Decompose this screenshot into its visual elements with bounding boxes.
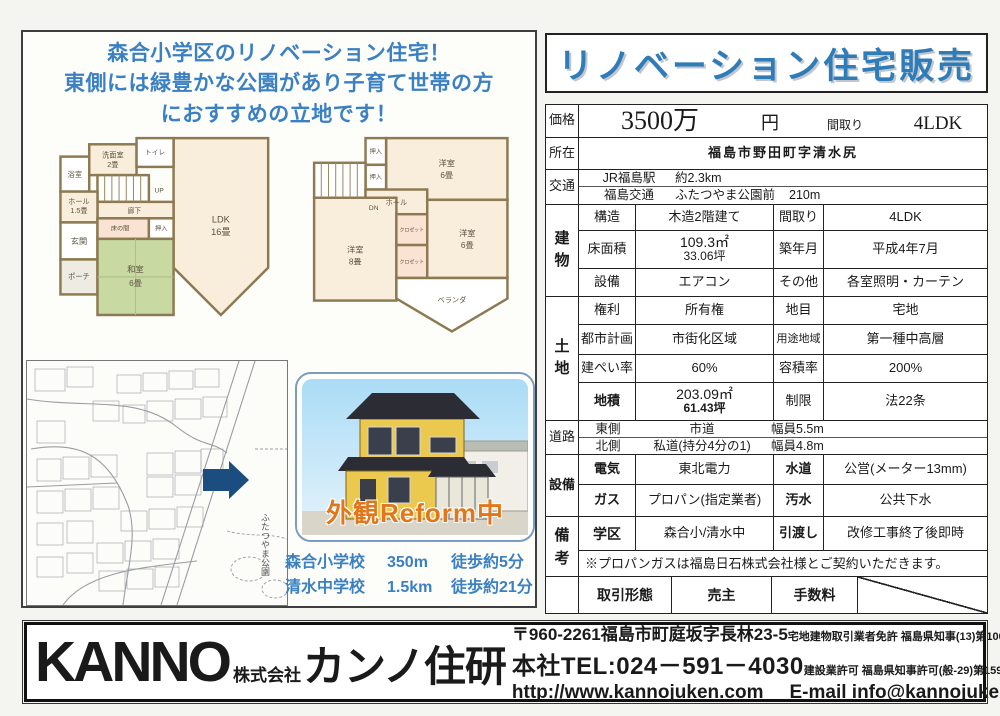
- label-hall-2f: ホール: [386, 198, 408, 207]
- company-footer: KANNO 株式会社 カンノ住研 〒960-2261福島市町庭坂字長林23-5 …: [24, 622, 986, 702]
- price-unit: 円: [740, 113, 800, 134]
- company-url: http://www.kannojuken.com: [512, 682, 764, 704]
- label-dn: DN: [369, 205, 379, 212]
- room-west3: [427, 200, 507, 278]
- deal-type-label: 取引形態: [579, 577, 672, 613]
- label-ldk: LDK: [212, 214, 231, 224]
- deal-empty-cell: [546, 577, 579, 613]
- row-building-3: 設備 エアコン その他 各室照明・カーテン: [546, 268, 988, 296]
- logo-kanno: KANNO: [35, 634, 229, 691]
- label-tatami: 和室: [127, 264, 143, 274]
- deal-seller-label: 売主: [672, 577, 772, 613]
- row-road: 道路 東側市道幅員5.5m 北側私道(持分4分の1)幅員4.8m: [546, 420, 988, 455]
- company-contact: 〒960-2261福島市町庭坂字長林23-5 宅地建物取引業者免許 福島県知事(…: [512, 620, 977, 704]
- headline: 森合小学区のリノベーション住宅！ 東側には緑豊かな公園があり子育て世帯の方 にお…: [23, 32, 535, 130]
- price-value-cell: 3500万 円 間取り 4LDK: [579, 105, 988, 138]
- madori-label: 間取り: [800, 119, 890, 133]
- company-tel: 本社TEL:024－591－4030: [512, 646, 804, 681]
- exterior-photo: 外観Reform中: [295, 372, 535, 542]
- label-corridor: 廊下: [128, 206, 142, 215]
- footer-line-1: 〒960-2261福島市町庭坂字長林23-5 宅地建物取引業者免許 福島県知事(…: [512, 620, 977, 645]
- label-closet-b: 押入: [370, 173, 382, 181]
- label-tatami-size: 6畳: [129, 279, 142, 288]
- label-entrance: 玄関: [71, 236, 87, 246]
- floorplan-2f: 押入 押入 DN ホール 洋室 6畳 洋室 8畳 クロゼット クロゼット 洋室 …: [305, 134, 533, 352]
- footer-line-2: 本社TEL:024－591－4030 建設業許可 福島県知事許可(般-29)第1…: [512, 646, 977, 681]
- photo-caption: 外観Reform中: [297, 493, 533, 530]
- label-up: UP: [155, 188, 165, 195]
- location-label: 所在: [546, 137, 579, 169]
- label-tokonoma: 床の間: [111, 225, 129, 233]
- access-label: 交通: [546, 169, 579, 204]
- headline-line3: におすすめの立地です！: [23, 100, 535, 130]
- label-washroom: 洗面室: [102, 151, 124, 160]
- label-west3-size: 6畳: [461, 241, 474, 250]
- location-map: ふたつやま公園: [26, 360, 288, 606]
- row-land-1: 土地 権利 所有権 地目 宅地: [546, 296, 988, 324]
- headline-line2: 東側には緑豊かな公園があり子育て世帯の方: [23, 69, 535, 99]
- label-toilet: トイレ: [145, 150, 165, 157]
- flyer-page: 森合小学区のリノベーション住宅！ 東側には緑豊かな公園があり子育て世帯の方 にお…: [0, 0, 1000, 716]
- floorplan-1f: 浴室 洗面室 2畳 トイレ UP 廊下 ホール 1.5畳 玄関 ポーチ 床の間 …: [29, 134, 277, 352]
- row-utilities-2: ガス プロパン(指定業者) 汚水 公共下水: [546, 485, 988, 517]
- floor-area-cell: 109.3㎡33.06坪: [636, 230, 774, 268]
- label-west2-size: 8畳: [349, 258, 362, 267]
- location-value: 福島市野田町字清水尻: [579, 137, 988, 169]
- spec-table: 価格 3500万 円 間取り 4LDK 所在 福島市野田町字清水尻 交通 JR福…: [545, 104, 988, 579]
- company-address: 〒960-2261福島市町庭坂字長林23-5: [512, 620, 788, 645]
- row-building-2: 床面積 109.3㎡33.06坪 築年月 平成4年7月: [546, 230, 988, 268]
- label-west1: 洋室: [439, 158, 455, 168]
- notes-text: ※プロパンガスは福島日石株式会社様とご契約いただきます。: [579, 551, 988, 579]
- utilities-section-label: 設備: [546, 455, 579, 517]
- license-1: 宅地建物取引業者免許 福島県知事(13)第10095号: [788, 628, 1000, 644]
- row-land-4: 地積 203.09㎡61.43坪 制限 法22条: [546, 382, 988, 420]
- label-hall: ホール: [68, 197, 90, 206]
- label-west1-size: 6畳: [440, 171, 453, 180]
- label-closet-a: 押入: [370, 148, 382, 156]
- map-drawing: ふたつやま公園: [27, 361, 287, 605]
- footer-line-3: http://www.kannojuken.com E-mail info@ka…: [512, 682, 977, 704]
- deal-row: 取引形態 売主 手数料: [545, 576, 988, 614]
- notes-section-label: 備考: [546, 517, 579, 579]
- license-2: 建設業許可 福島県知事許可(般-29)第1598号: [804, 662, 1000, 678]
- deal-fee-label: 手数料: [772, 577, 858, 613]
- price-label: 価格: [546, 105, 579, 138]
- label-hall-size: 1.5畳: [70, 206, 87, 215]
- school-distances: 森合小学校350m徒歩約5分 清水中学校1.5km徒歩約21分: [285, 551, 539, 601]
- madori-value: 4LDK: [890, 113, 986, 135]
- sale-title: リノベーション住宅販売: [558, 38, 975, 89]
- label-veranda: ベランダ: [438, 296, 467, 305]
- label-bath: 浴室: [68, 170, 82, 179]
- company-email: E-mail info@kannojuken.com: [790, 682, 1000, 704]
- logo-kabushiki: 株式会社: [233, 661, 301, 686]
- price-value: 3500万: [580, 106, 740, 136]
- label-washroom-size: 2畳: [107, 160, 118, 169]
- headline-line1: 森合小学区のリノベーション住宅！: [23, 39, 535, 69]
- access-value-cell: JR福島駅約2.3km 福島交通ふたつやま公園前210m: [579, 169, 988, 204]
- school-line-2: 清水中学校1.5km徒歩約21分: [285, 576, 539, 601]
- building-section-label: 建物: [546, 204, 579, 296]
- label-porch: ポーチ: [68, 272, 90, 281]
- road-label: 道路: [546, 420, 579, 455]
- row-notes-2: ※プロパンガスは福島日石株式会社様とご契約いただきます。: [546, 551, 988, 579]
- label-west2: 洋室: [347, 244, 363, 254]
- deal-diagonal-cell: [858, 577, 987, 613]
- row-notes-1: 備考 学区 森合小/清水中 引渡し 改修工事終了後即時: [546, 517, 988, 551]
- label-west3: 洋室: [459, 228, 475, 238]
- label-closet-c: クロゼット: [399, 227, 424, 234]
- row-location: 所在 福島市野田町字清水尻: [546, 137, 988, 169]
- row-land-3: 建ぺい率 60% 容積率 200%: [546, 354, 988, 382]
- company-logo: KANNO 株式会社 カンノ住研: [35, 634, 506, 691]
- label-closet: 押入: [155, 225, 167, 233]
- row-building-1: 建物 構造 木造2階建て 間取り 4LDK: [546, 204, 988, 230]
- row-utilities-1: 設備 電気 東北電力 水道 公営(メーター13mm): [546, 455, 988, 485]
- veranda: [396, 278, 507, 331]
- left-panel: 森合小学区のリノベーション住宅！ 東側には緑豊かな公園があり子育て世帯の方 にお…: [21, 30, 537, 608]
- label-ldk-size: 16畳: [211, 227, 231, 237]
- sale-title-box: リノベーション住宅販売: [545, 33, 988, 93]
- map-park-label: ふたつやま公園: [260, 513, 270, 577]
- row-access: 交通 JR福島駅約2.3km 福島交通ふたつやま公園前210m: [546, 169, 988, 204]
- school-line-1: 森合小学校350m徒歩約5分: [285, 551, 539, 576]
- road-value-cell: 東側市道幅員5.5m 北側私道(持分4分の1)幅員4.8m: [579, 420, 988, 455]
- land-area-cell: 203.09㎡61.43坪: [636, 382, 774, 420]
- row-land-2: 都市計画 市街化区域 用途地域 第一種中高層: [546, 324, 988, 354]
- land-section-label: 土地: [546, 296, 579, 420]
- location-arrow-icon: [203, 461, 249, 499]
- row-price: 価格 3500万 円 間取り 4LDK: [546, 105, 988, 138]
- floorplans: 浴室 洗面室 2畳 トイレ UP 廊下 ホール 1.5畳 玄関 ポーチ 床の間 …: [29, 134, 533, 356]
- logo-kanno-juken: カンノ住研: [303, 646, 506, 688]
- label-closet-d: クロゼット: [399, 259, 424, 266]
